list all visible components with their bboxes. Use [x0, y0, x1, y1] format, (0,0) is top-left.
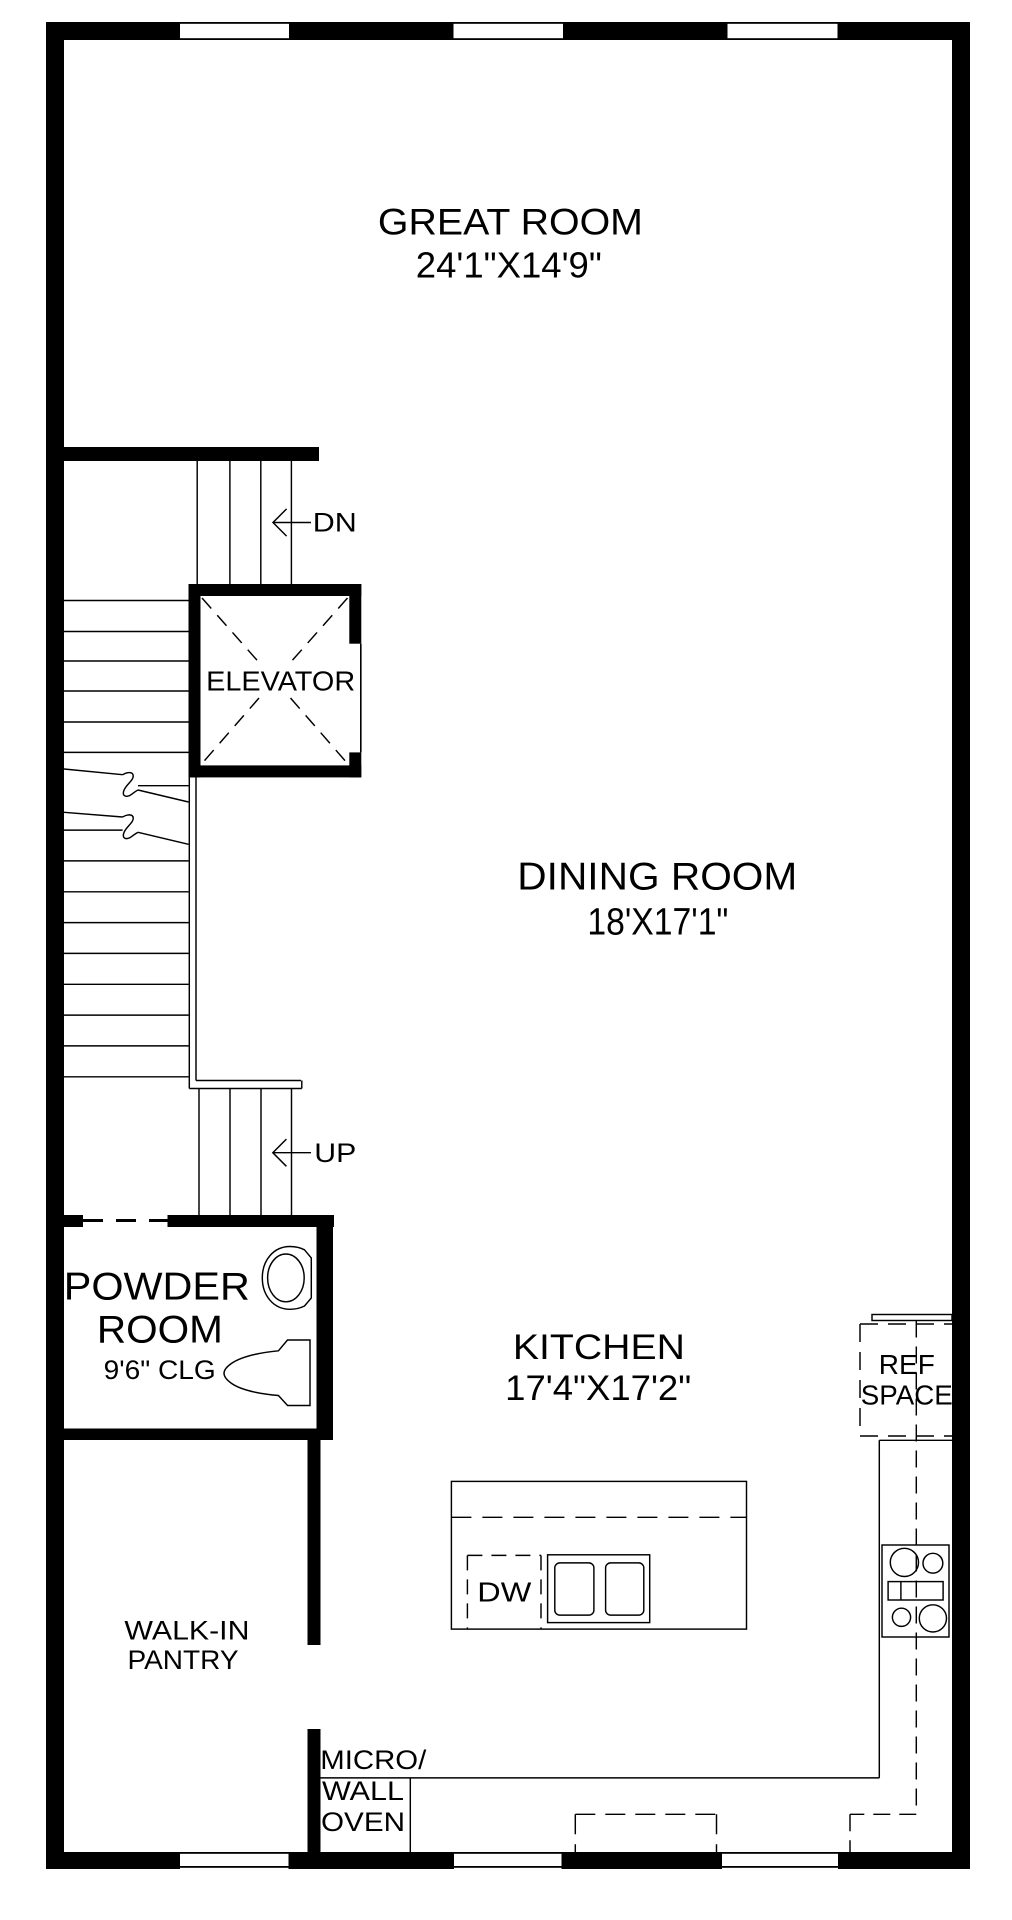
svg-text:WALL: WALL	[322, 1775, 404, 1806]
svg-text:GREAT ROOM: GREAT ROOM	[378, 200, 643, 242]
svg-text:24'1"X14'9": 24'1"X14'9"	[416, 245, 602, 286]
svg-text:PANTRY: PANTRY	[128, 1645, 239, 1675]
svg-text:DINING ROOM: DINING ROOM	[517, 856, 797, 899]
svg-text:WALK-IN: WALK-IN	[124, 1615, 249, 1645]
svg-text:OVEN: OVEN	[321, 1806, 405, 1837]
svg-text:UP: UP	[314, 1138, 356, 1168]
svg-text:9'6" CLG: 9'6" CLG	[104, 1355, 216, 1385]
svg-text:ELEVATOR: ELEVATOR	[206, 665, 355, 696]
svg-text:17'4"X17'2": 17'4"X17'2"	[505, 1368, 691, 1408]
svg-text:DN: DN	[313, 507, 357, 537]
svg-text:KITCHEN: KITCHEN	[513, 1327, 685, 1367]
svg-text:18'X17'1": 18'X17'1"	[587, 902, 728, 944]
svg-text:POWDER: POWDER	[64, 1266, 250, 1309]
svg-text:ROOM: ROOM	[97, 1309, 223, 1352]
svg-text:REF: REF	[879, 1349, 935, 1380]
svg-text:SPACE: SPACE	[861, 1379, 953, 1410]
svg-text:MICRO/: MICRO/	[320, 1744, 426, 1775]
svg-text:DW: DW	[477, 1577, 532, 1608]
